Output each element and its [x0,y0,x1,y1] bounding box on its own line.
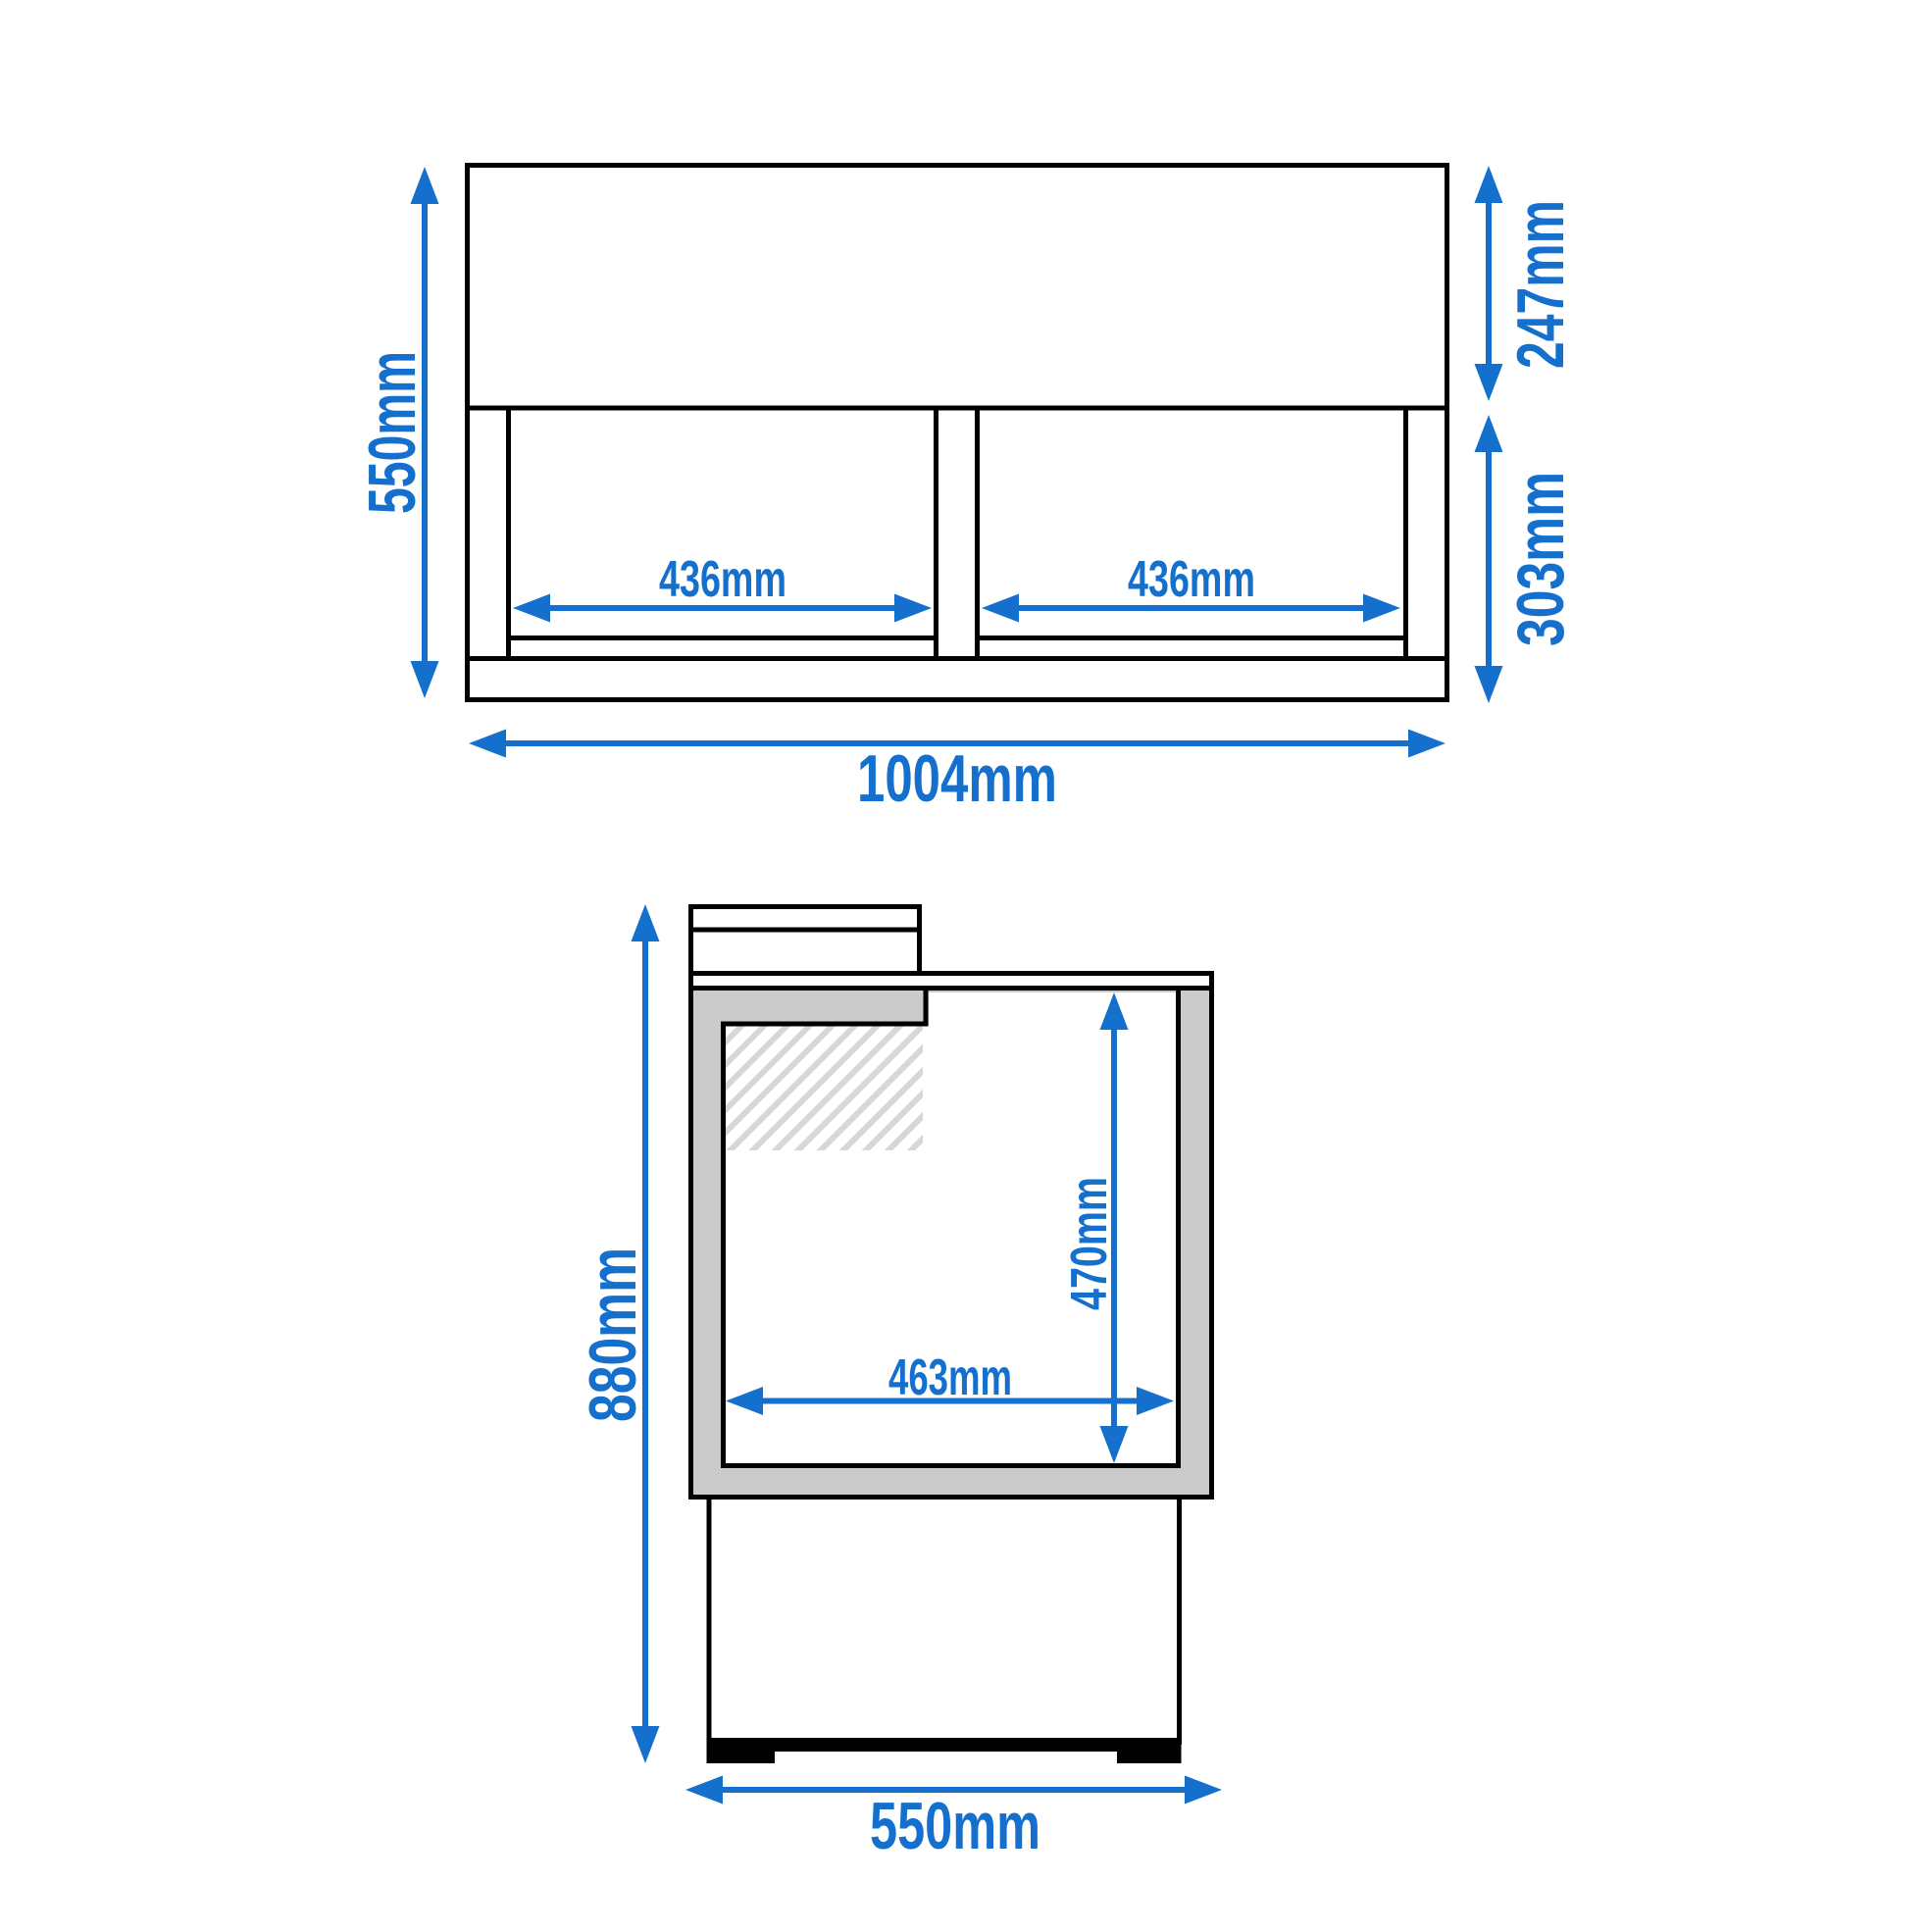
svg-text:1004mm: 1004mm [857,741,1057,816]
svg-text:436mm: 436mm [659,551,786,608]
svg-text:550mm: 550mm [355,351,430,514]
svg-text:470mm: 470mm [1061,1177,1118,1310]
svg-text:463mm: 463mm [888,1349,1012,1406]
svg-text:550mm: 550mm [870,1789,1040,1863]
svg-text:880mm: 880mm [576,1247,650,1422]
svg-text:247mm: 247mm [1503,200,1578,369]
svg-text:303mm: 303mm [1503,472,1578,646]
svg-text:436mm: 436mm [1128,551,1255,608]
